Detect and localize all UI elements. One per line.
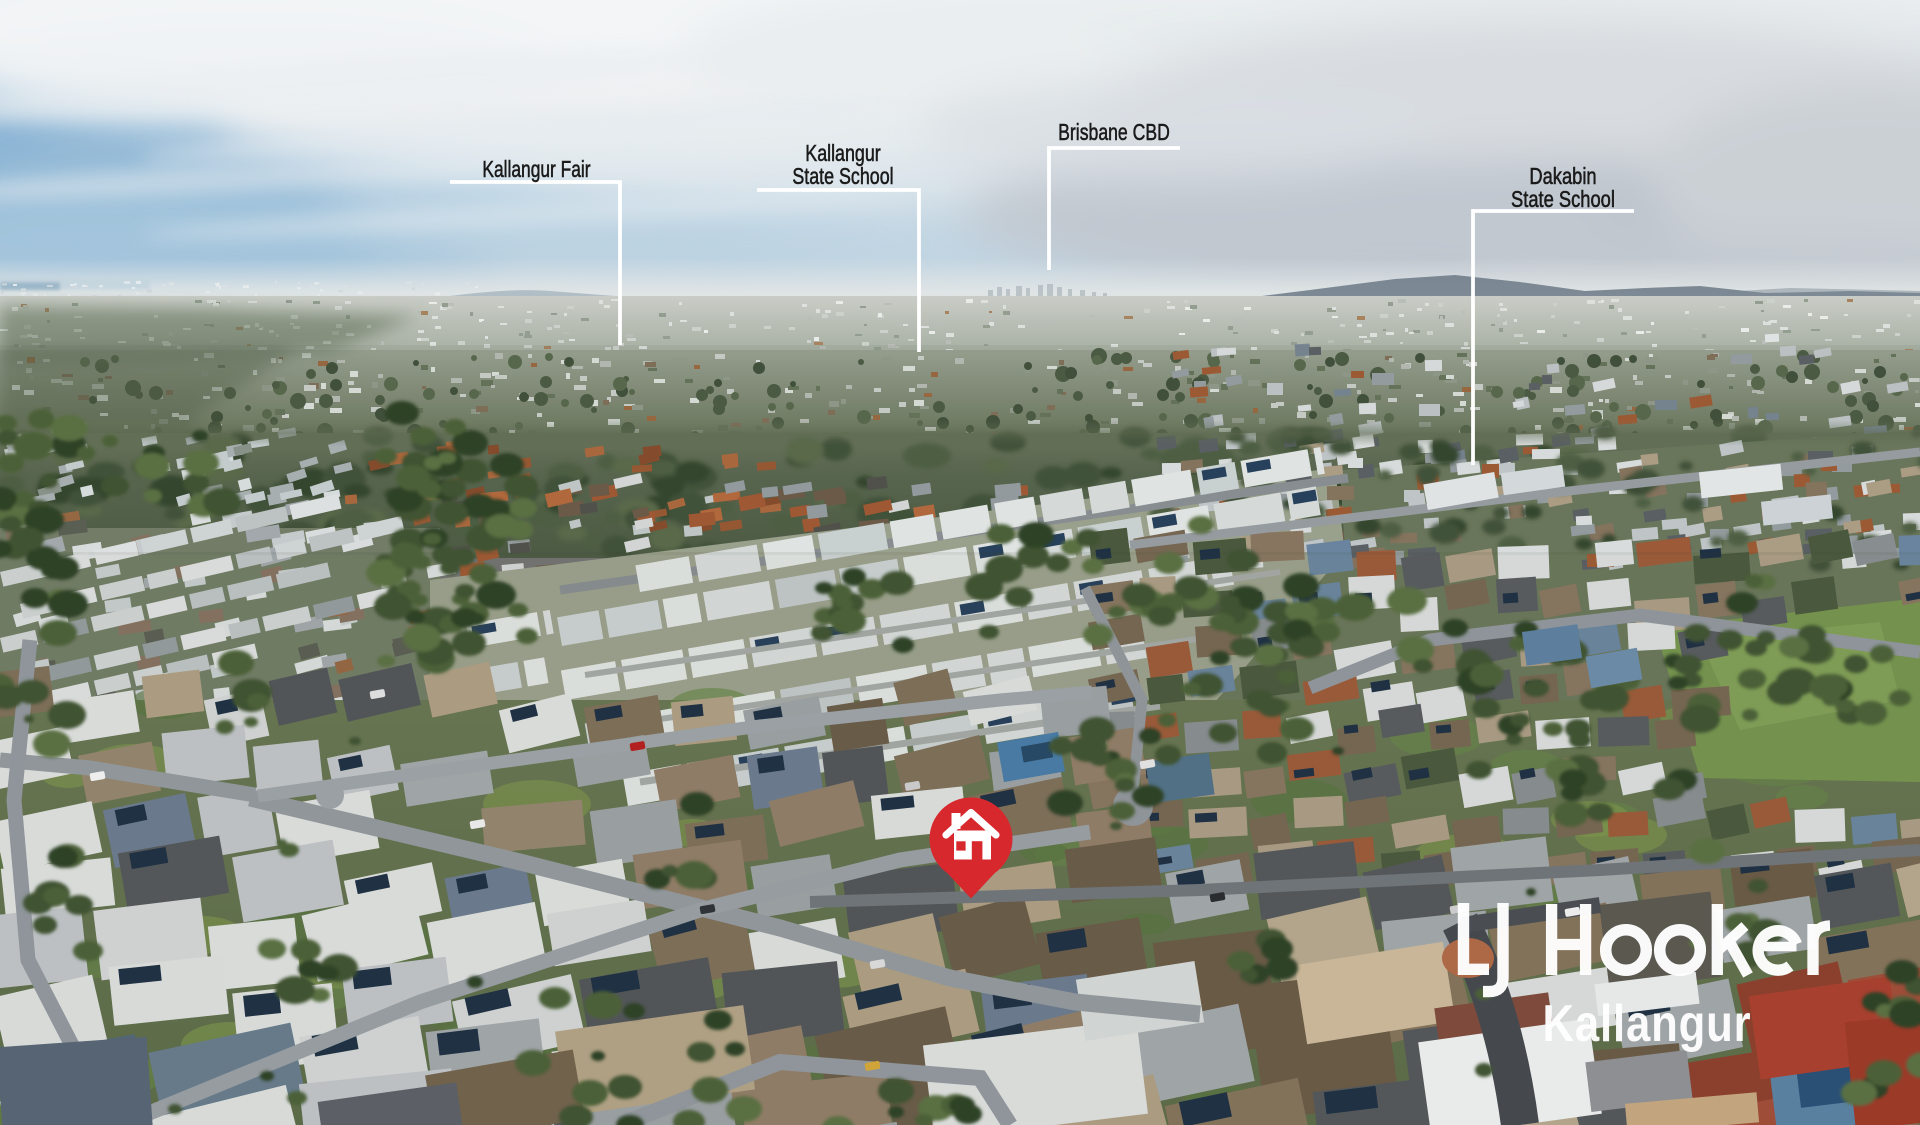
svg-text:Kallangur Fair: Kallangur Fair <box>482 157 590 183</box>
svg-text:Kallangur: Kallangur <box>1543 996 1752 1053</box>
svg-text:State School: State School <box>1511 187 1615 213</box>
svg-text:State School: State School <box>792 164 893 190</box>
svg-text:Brisbane CBD: Brisbane CBD <box>1058 120 1170 146</box>
svg-text:Dakabin: Dakabin <box>1529 164 1596 190</box>
